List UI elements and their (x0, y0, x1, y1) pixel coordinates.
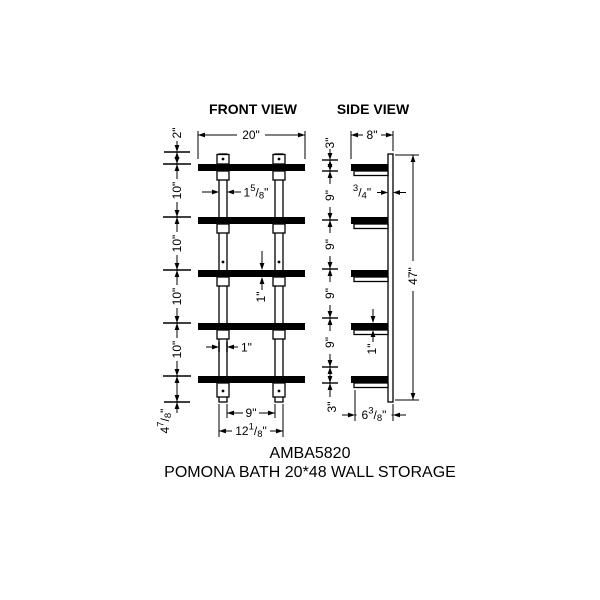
side-spacing-label-3: 9" (323, 288, 337, 299)
side-bottom-depth-dimension: 63/8" (342, 390, 406, 424)
side-spacing-label-2: 9" (323, 239, 337, 250)
front-spacing-label-1: 10" (170, 182, 184, 200)
front-rail-face-label: 1" (241, 341, 252, 355)
side-depth-label: 8" (367, 128, 378, 142)
side-bottom-offset-label: 3" (325, 402, 339, 413)
product-name: POMONA BATH 20*48 WALL STORAGE (164, 464, 456, 481)
front-spacing-label-3: 10" (170, 288, 184, 306)
front-rail-face-dimension: 1" (206, 341, 252, 355)
front-view-title: FRONT VIEW (209, 101, 298, 117)
front-spacing-label-4: 10" (170, 341, 184, 359)
front-rail-width-dimension: 15/8" (202, 183, 268, 202)
side-view-title: SIDE VIEW (337, 101, 410, 117)
front-width-dimension: 20" (198, 127, 305, 159)
side-panel-thickness-dimension: 3/4" (353, 183, 406, 202)
front-shelf-thickness-label: 1" (254, 292, 268, 303)
front-bottom-offset-label: 47/8" (155, 409, 174, 434)
spec-drawing-canvas: 20" . 2" 10" 10" 10" 10" 47/8" (0, 0, 600, 600)
technical-drawing-page: 20" . 2" 10" 10" 10" 10" 47/8" (0, 0, 600, 600)
front-inner-span-dimension: 9" (227, 404, 275, 421)
front-spacing-label-2: 10" (170, 235, 184, 253)
side-spacing-label-1: 9" (323, 190, 337, 201)
side-height-chain-dimension: 3" 9" 9" 9" 9" 3" (322, 138, 339, 413)
side-overall-height-label: 47" (406, 267, 420, 285)
front-width-label: 20" (242, 128, 260, 142)
side-depth-dimension: 8" (351, 128, 393, 160)
model-number: AMBA5820 (270, 445, 351, 462)
side-wall-rail (388, 154, 393, 402)
side-spacing-label-4: 9" (323, 337, 337, 348)
front-height-chain-dimension: . 2" 10" 10" 10" 10" 47/8" (0, 0, 191, 433)
front-inner-span-label: 9" (246, 406, 257, 420)
side-panel-thickness-label: 3/4" (353, 183, 371, 202)
side-bottom-depth-label: 63/8" (362, 405, 387, 424)
side-top-offset-label: 3" (323, 138, 337, 149)
side-shelf-thickness-label: 1" (365, 344, 379, 355)
front-rail-width-label: 15/8" (244, 183, 269, 202)
front-top-offset-label: 2" (170, 128, 184, 139)
